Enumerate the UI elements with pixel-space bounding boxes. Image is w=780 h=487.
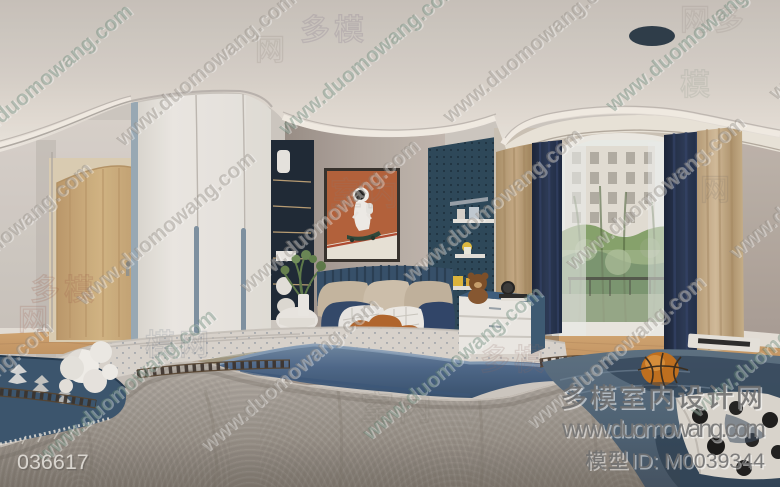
svg-text:www.duomowang.com: www.duomowang.com: [111, 0, 300, 151]
svg-text:036617: 036617: [17, 450, 89, 474]
svg-text:ID: M0039344: ID: M0039344: [631, 449, 765, 473]
svg-text:www.duomowang.com: www.duomowang.com: [601, 0, 780, 117]
svg-text:www.duomowang.com: www.duomowang.com: [398, 123, 587, 287]
svg-text:www.duomowang.com: www.duomowang.com: [32, 304, 221, 468]
svg-text:www.duomowang.com: www.duomowang.com: [235, 134, 424, 298]
svg-text:www.duomowang.com: www.duomowang.com: [195, 293, 384, 457]
svg-text:www.duomowang.com: www.duomowang.com: [71, 146, 260, 310]
svg-text:www.duomowang.com: www.duomowang.com: [561, 111, 750, 275]
svg-text:www.duomowang.com: www.duomowang.com: [0, 0, 179, 5]
svg-text:www.duomowang.com: www.duomowang.com: [561, 415, 766, 443]
svg-text:www.duomowang.com: www.duomowang.com: [274, 0, 463, 140]
svg-text:www.duomowang.com: www.duomowang.com: [438, 0, 627, 128]
svg-text:www.duomowang.com: www.duomowang.com: [764, 0, 780, 105]
svg-text:www.duomowang.com: www.duomowang.com: [0, 0, 177, 4]
